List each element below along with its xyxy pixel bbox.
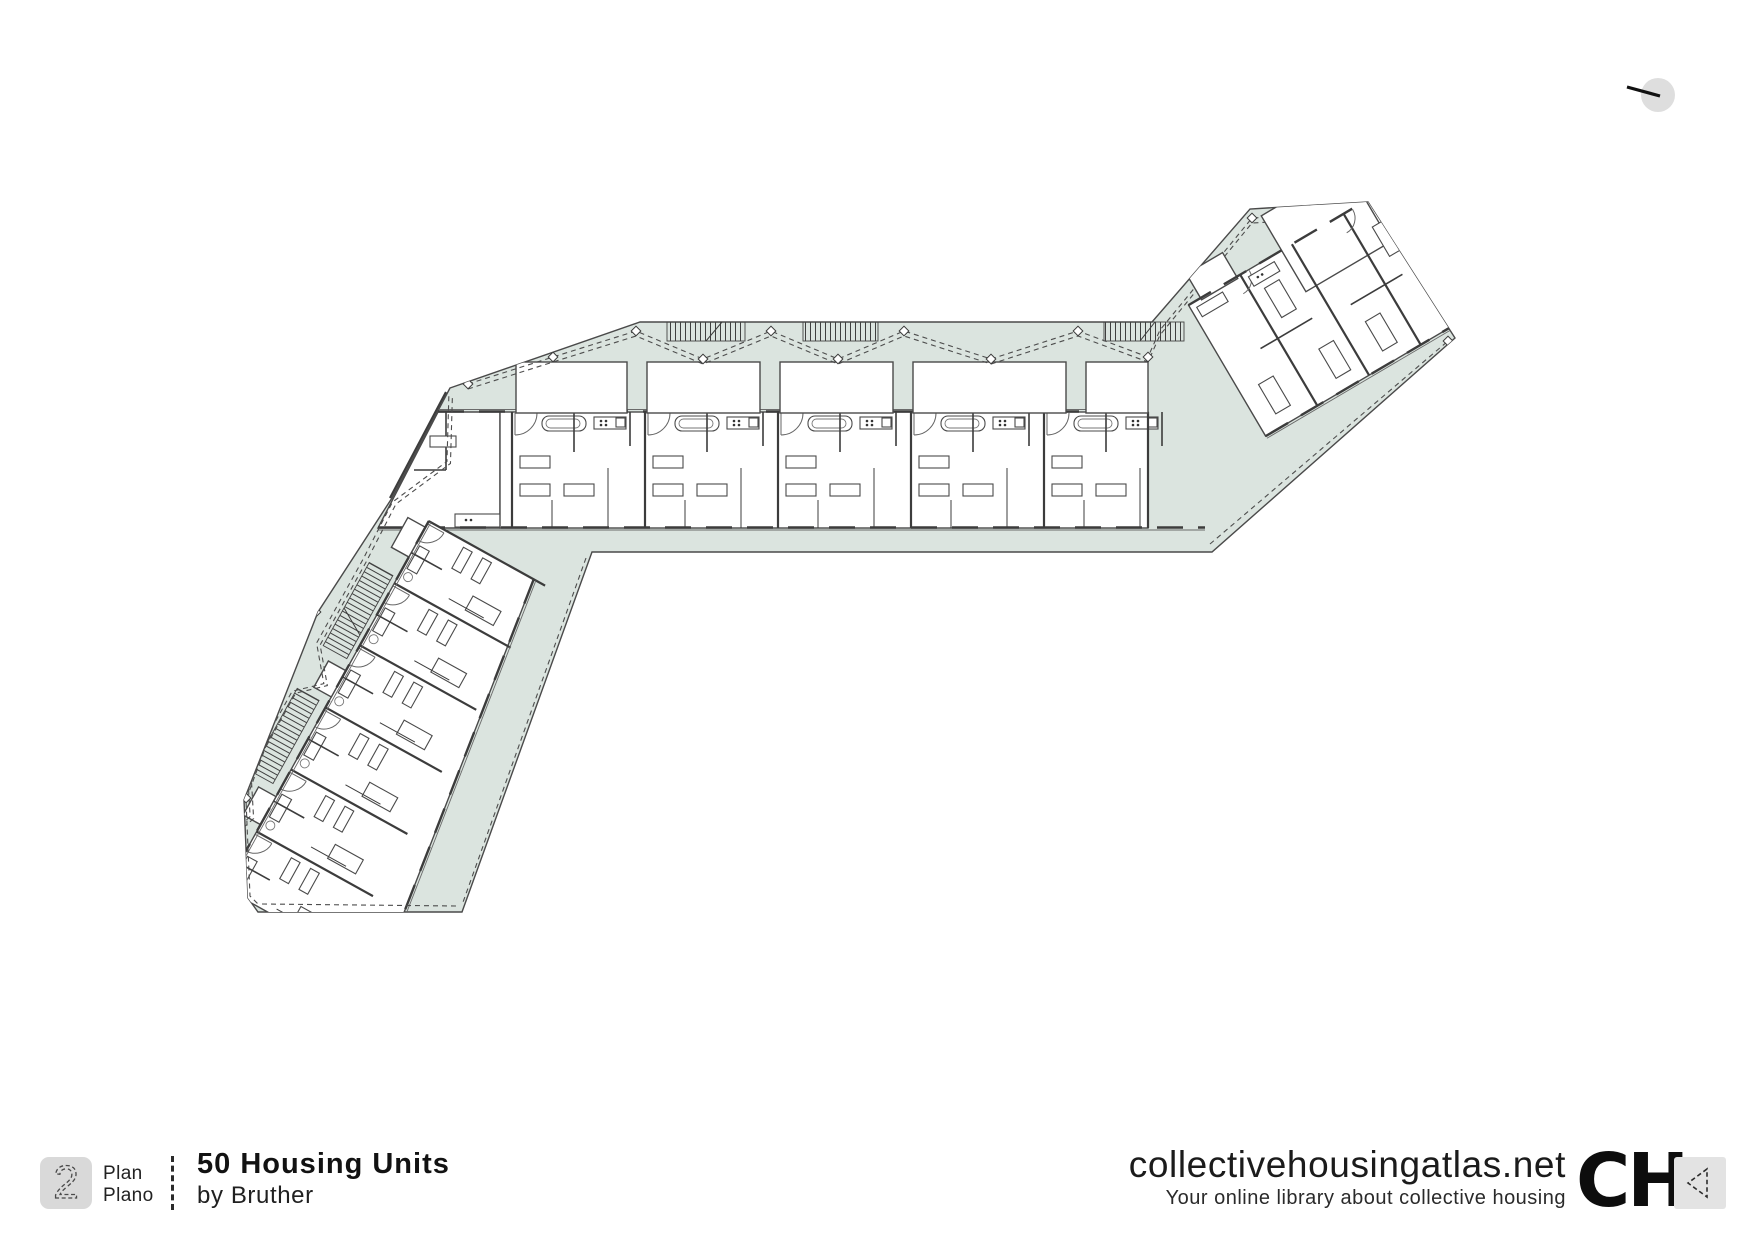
- page-number-badge: 2: [40, 1157, 92, 1209]
- site-logo[interactable]: CH: [1576, 1138, 1686, 1224]
- page-number-text: 2: [53, 1157, 79, 1208]
- project-title: 50 Housing Units: [197, 1148, 450, 1181]
- north-indicator-icon: [1610, 60, 1720, 130]
- dashed-number: 2: [40, 1157, 92, 1209]
- site-identity: collectivehousingatlas.net Your online l…: [1108, 1144, 1566, 1210]
- back-button[interactable]: [1674, 1157, 1726, 1209]
- label-plan-es: Plano: [103, 1185, 154, 1207]
- project-title-block: 50 Housing Units by Bruther: [197, 1148, 450, 1210]
- site-tagline: Your online library about collective hou…: [1108, 1187, 1566, 1210]
- dashed-left-arrow-icon: [1674, 1157, 1726, 1209]
- label-plan-en: Plan: [103, 1163, 154, 1185]
- floor-plan-drawing: [0, 0, 1754, 1240]
- site-domain[interactable]: collectivehousingatlas.net: [1108, 1144, 1566, 1186]
- plan-sheet-page: 2 Plan Plano 50 Housing Units by Bruther…: [0, 0, 1754, 1240]
- drawing-type-labels: Plan Plano: [103, 1163, 154, 1207]
- project-byline: by Bruther: [197, 1182, 450, 1210]
- dashed-divider: [171, 1156, 174, 1210]
